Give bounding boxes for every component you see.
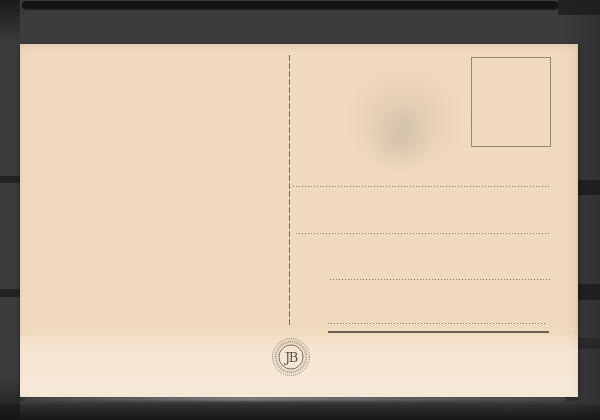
address-line-bottom-solid	[328, 331, 549, 333]
postcard-back: JB	[20, 44, 578, 397]
album-slot-right-top	[558, 0, 600, 15]
stain-smudge	[320, 44, 490, 194]
album-shadow-top-left	[0, 0, 20, 44]
album-slot-left-lower	[0, 289, 21, 297]
stamp-box	[471, 57, 551, 147]
stain-smudge-small	[350, 89, 450, 189]
address-line-3	[330, 279, 550, 280]
publisher-emblem: JB	[271, 337, 311, 377]
album-slot-left-upper	[0, 176, 21, 183]
album-slot-top	[22, 1, 558, 9]
album-bottom-dark-strip	[0, 404, 600, 420]
photo-of-postcard-in-album: JB	[0, 0, 600, 420]
emblem-monogram: JB	[283, 350, 298, 365]
address-line-1	[293, 186, 551, 187]
center-divider-line	[289, 55, 290, 325]
plastic-sleeve-reflection	[24, 396, 566, 401]
address-line-4	[328, 323, 546, 324]
address-line-2	[296, 233, 550, 234]
